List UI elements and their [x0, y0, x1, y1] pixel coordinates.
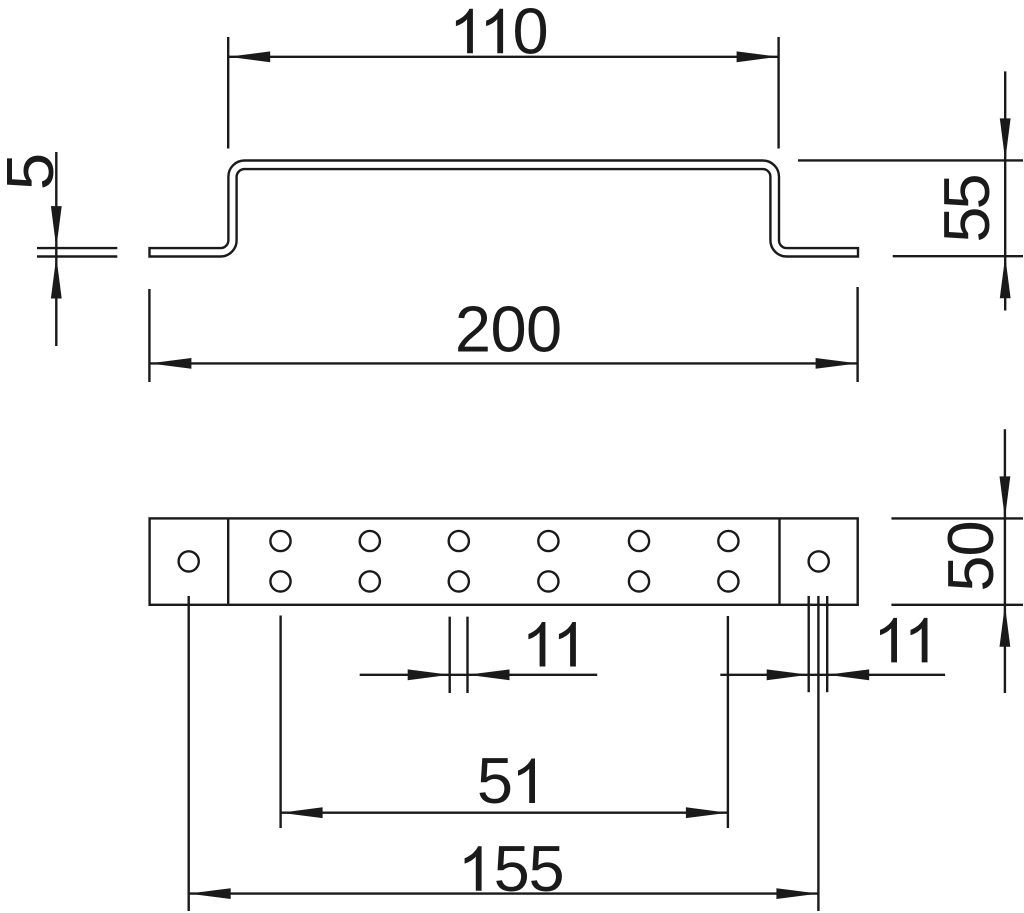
svg-text:0: 0	[513, 0, 549, 67]
svg-text:55: 55	[494, 832, 564, 905]
svg-text:50: 50	[934, 521, 1007, 591]
svg-text:55: 55	[930, 176, 1003, 243]
svg-text:5: 5	[477, 744, 513, 817]
svg-text:5: 5	[0, 153, 68, 190]
svg-text:200: 200	[455, 293, 562, 366]
